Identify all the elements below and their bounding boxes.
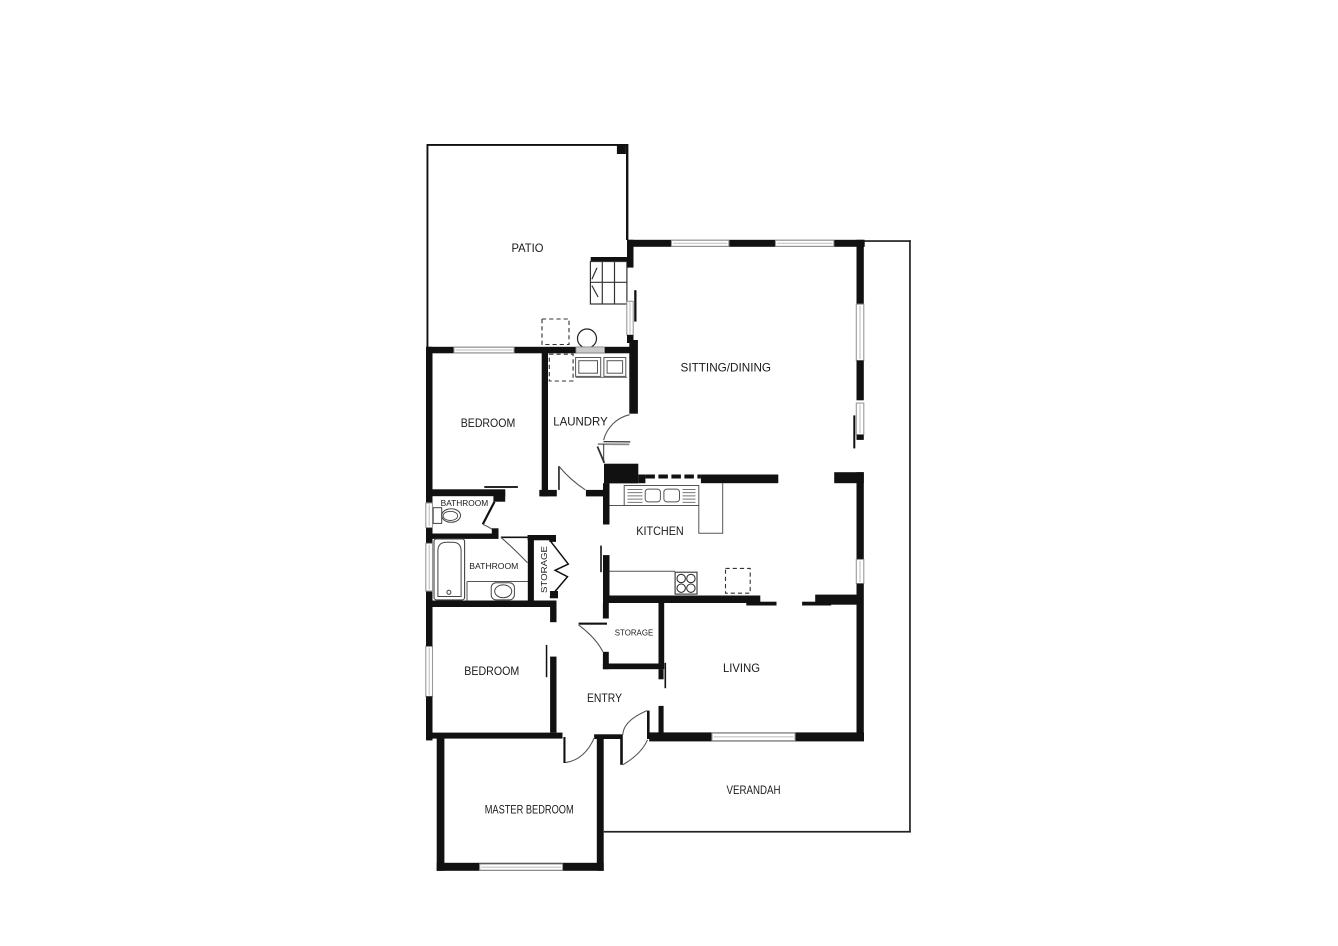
svg-text:LIVING: LIVING — [723, 661, 760, 675]
svg-text:BEDROOM: BEDROOM — [461, 416, 516, 430]
svg-text:PATIO: PATIO — [512, 241, 544, 255]
svg-text:STORAGE: STORAGE — [615, 628, 654, 638]
svg-text:ENTRY: ENTRY — [587, 691, 622, 705]
svg-text:BATHROOM: BATHROOM — [441, 498, 489, 508]
svg-text:LAUNDRY: LAUNDRY — [553, 415, 608, 429]
svg-text:BATHROOM: BATHROOM — [469, 561, 518, 571]
svg-text:VERANDAH: VERANDAH — [727, 783, 781, 797]
svg-text:MASTER BEDROOM: MASTER BEDROOM — [485, 802, 574, 816]
svg-text:BEDROOM: BEDROOM — [464, 664, 519, 678]
svg-text:STORAGE: STORAGE — [540, 545, 549, 593]
svg-text:SITTING/DINING: SITTING/DINING — [681, 361, 772, 375]
svg-text:KITCHEN: KITCHEN — [636, 524, 684, 538]
